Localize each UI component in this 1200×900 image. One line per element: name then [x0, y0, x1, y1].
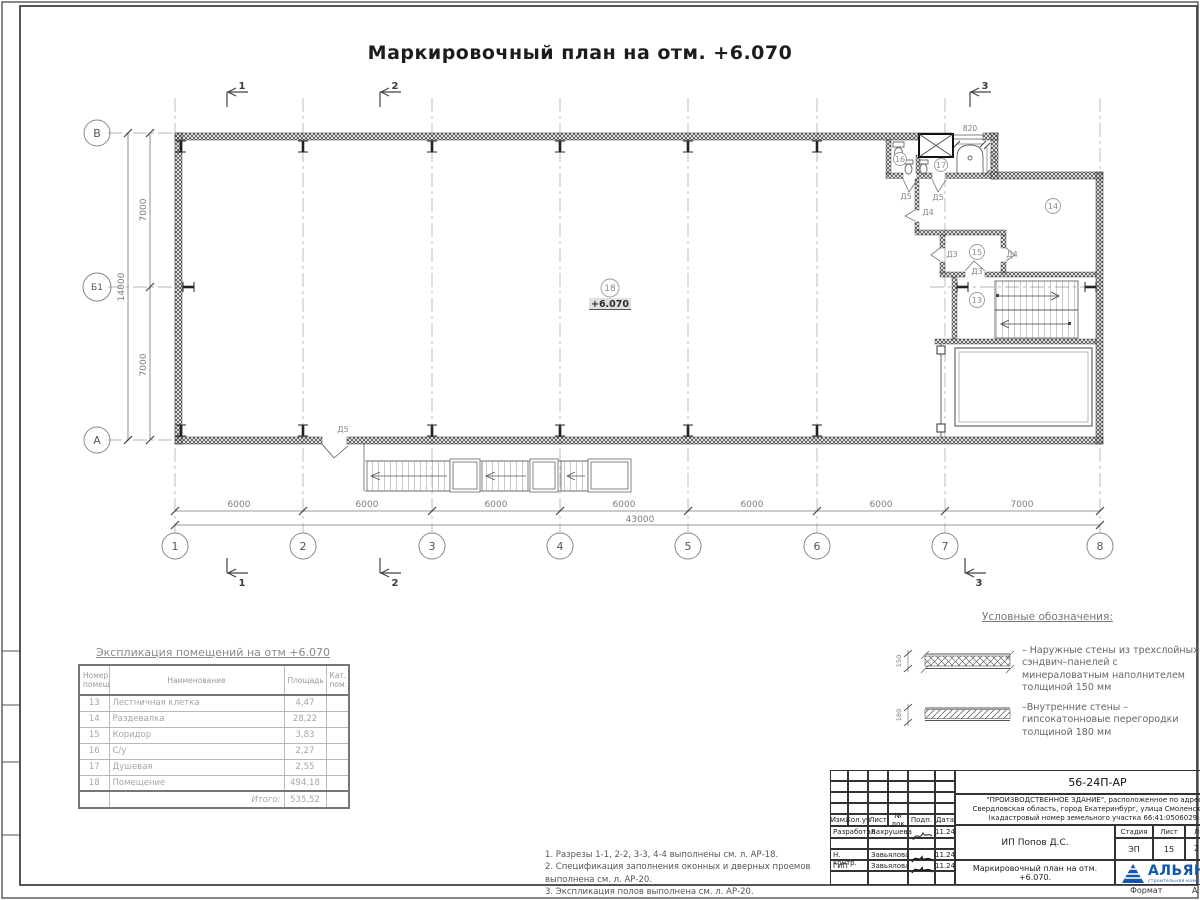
tb-cell: [908, 803, 935, 814]
dimensions-left: 7000 7000 14000: [117, 129, 154, 444]
tb-date-ncontrol: 11.24: [935, 849, 955, 860]
tb-cell: [935, 803, 955, 814]
tb-client: ИП Попов Д.С.: [955, 825, 1115, 860]
cell-area: 494,18: [284, 775, 326, 791]
table-row: 18 Помещение 494,18: [79, 775, 349, 791]
tb-cell: [935, 770, 955, 781]
note-line: 3. Экспликация полов выполнена см. л. АР…: [545, 886, 855, 898]
col-header-name: Наименование: [109, 665, 284, 695]
tb-name-ncontrol: Завьялова: [868, 849, 908, 860]
tb-signature-gip: [908, 860, 935, 871]
svg-text:6000: 6000: [870, 500, 893, 510]
tb-cell: [888, 770, 908, 781]
svg-text:2: 2: [300, 540, 307, 553]
cell-number: 16: [79, 743, 109, 759]
room-schedule: Экспликация помещений на отм +6.070 Номе…: [78, 646, 350, 809]
cell-name: Коридор: [109, 727, 284, 743]
tb-stage-label: Стадия: [1115, 825, 1153, 838]
cell-cat: [326, 759, 349, 775]
svg-text:8: 8: [1097, 540, 1104, 553]
svg-text:6000: 6000: [228, 500, 251, 510]
svg-text:В: В: [93, 127, 101, 140]
logo-name: АЛЬЯНС: [1148, 863, 1200, 879]
svg-text:150: 150: [895, 655, 903, 667]
cell-cat: [326, 711, 349, 727]
tb-col-data: Дата: [935, 814, 955, 826]
cell-cat: [326, 743, 349, 759]
tb-signature-developer: [908, 826, 935, 838]
svg-text:7000: 7000: [139, 198, 149, 221]
exterior-stair: [322, 444, 631, 492]
svg-text:+6.070: +6.070: [591, 299, 629, 310]
svg-text:Д4: Д4: [922, 208, 933, 217]
tb-logo-cell: АЛЬЯНС строительная компания: [1115, 860, 1200, 885]
svg-text:7: 7: [942, 540, 949, 553]
svg-text:1: 1: [172, 540, 179, 553]
cell-area: 2,27: [284, 743, 326, 759]
tb-cell: [888, 781, 908, 792]
total-label: Итого:: [109, 791, 284, 808]
svg-text:1100: 1100: [989, 150, 998, 169]
tb-project-description: "ПРОИЗВОДСТВЕННОЕ ЗДАНИЕ", расположенное…: [955, 794, 1200, 825]
tb-cell: [830, 803, 848, 814]
tb-cell: [935, 781, 955, 792]
cell-area: 4,47: [284, 695, 326, 711]
table-row: 15 Коридор 3,83: [79, 727, 349, 743]
notes-block: 1. Разрезы 1-1, 2-2, 3-3, 4-4 выполнены …: [545, 849, 855, 898]
cell-name: Раздевалка: [109, 711, 284, 727]
table-row: 16 С/у 2,27: [79, 743, 349, 759]
floor-opening: [937, 346, 1092, 432]
page-title: Маркировочный план на отм. +6.070: [300, 42, 860, 64]
tb-cell: [868, 792, 888, 803]
tb-sheet-title: Маркировочный план на отм. +6.070.: [955, 860, 1115, 885]
tb-cell: [935, 792, 955, 803]
svg-text:15: 15: [972, 248, 982, 257]
svg-text:6000: 6000: [613, 500, 636, 510]
table-header-row: Номер помещ. Наименование Площадь Кат. п…: [79, 665, 349, 695]
svg-text:3: 3: [976, 578, 983, 589]
svg-text:Д5: Д5: [932, 193, 943, 202]
cell-name: Душевая: [109, 759, 284, 775]
col-header-area: Площадь: [284, 665, 326, 695]
cell-number: 18: [79, 775, 109, 791]
svg-text:13: 13: [972, 296, 982, 305]
cell-cat: [326, 727, 349, 743]
table-row: 14 Раздевалка 28,22: [79, 711, 349, 727]
elevation-mark: +6.070: [589, 298, 631, 310]
elevator-shaft: [919, 134, 953, 157]
svg-text:6: 6: [814, 540, 821, 553]
format-label: Формат: [1130, 886, 1162, 895]
format-value: А: [1192, 886, 1197, 895]
cell-area: 28,22: [284, 711, 326, 727]
tb-cell: [868, 803, 888, 814]
tb-cell: [830, 871, 868, 885]
tb-sheets-label: Листов: [1185, 825, 1200, 838]
tb-cell: [868, 871, 908, 885]
tb-name-gip: Завьялова: [868, 860, 908, 871]
svg-text:Д4: Д4: [1006, 250, 1017, 259]
table-total-row: Итого: 535,52: [79, 791, 349, 808]
exterior-walls: [175, 133, 1103, 444]
alliance-logo-icon: [1122, 864, 1144, 883]
tb-cell: [848, 781, 868, 792]
drawing-sheet: 1 2 3 4 5 6 7 8 В Б1 А 6000 6000 6000 60…: [0, 0, 1200, 900]
axis-labels-bottom: 1 2 3 4 5 6 7 8: [172, 540, 1104, 553]
svg-text:18: 18: [604, 284, 616, 294]
cell-number: 14: [79, 711, 109, 727]
tb-col-ndok: № док: [888, 814, 908, 826]
svg-text:1: 1: [239, 578, 246, 589]
cell-cat: [326, 695, 349, 711]
cell-number: 13: [79, 695, 109, 711]
table-row: 13 Лестничная клетка 4,47: [79, 695, 349, 711]
tb-col-list: Лист: [868, 814, 888, 826]
cell-name: Лестничная клетка: [109, 695, 284, 711]
svg-text:4: 4: [557, 540, 564, 553]
col-header-number: Номер помещ.: [79, 665, 109, 695]
svg-text:Б1: Б1: [91, 283, 103, 293]
dimensions-bottom: 6000 6000 6000 6000 6000 6000 7000 43000: [171, 500, 1104, 529]
svg-text:А: А: [93, 434, 101, 447]
svg-text:14: 14: [1048, 202, 1058, 211]
tb-cell: [868, 838, 908, 849]
total-value: 535,52: [284, 791, 326, 808]
svg-text:7000: 7000: [1011, 500, 1034, 510]
tb-document-code: 56-24П-АР: [955, 770, 1200, 794]
svg-text:Д5: Д5: [337, 425, 348, 434]
tb-cell: [908, 792, 935, 803]
svg-text:5: 5: [685, 540, 692, 553]
tb-cell: [830, 781, 848, 792]
svg-text:2: 2: [392, 81, 399, 92]
tb-sheets-value: 2: [1185, 838, 1200, 860]
svg-text:180: 180: [895, 709, 903, 721]
room-schedule-table: Номер помещ. Наименование Площадь Кат. п…: [78, 664, 350, 809]
tb-name-developer: Вахрушева: [868, 826, 908, 838]
tb-cell: [868, 770, 888, 781]
tb-cell: [908, 770, 935, 781]
cell-cat: [326, 775, 349, 791]
tb-role-gip: ГИП: [830, 860, 868, 871]
tb-cell: [908, 781, 935, 792]
svg-text:Д3: Д3: [946, 250, 957, 259]
legend-title: Условные обозначения:: [982, 611, 1113, 623]
tb-cell: [908, 871, 935, 885]
svg-text:Д3: Д3: [971, 267, 982, 276]
logo-tagline: строительная компания: [1148, 879, 1200, 884]
svg-text:2: 2: [392, 578, 399, 589]
tb-signature-ncontrol: [908, 849, 935, 860]
svg-text:43000: 43000: [626, 515, 655, 525]
section-mark-labels: 1 2 3 1 2 3: [239, 81, 989, 589]
tb-col-koluch: Кол.уч: [848, 814, 868, 826]
tb-cell: [830, 770, 848, 781]
tb-role-ncontrol: Н. контр.: [830, 849, 868, 860]
tb-cell: [935, 838, 955, 849]
cell-area: 3,83: [284, 727, 326, 743]
axis-labels-left: В Б1 А: [91, 127, 103, 447]
door-swings: [903, 179, 1015, 271]
svg-text:6000: 6000: [485, 500, 508, 510]
cell-number: 15: [79, 727, 109, 743]
room-schedule-title: Экспликация помещений на отм +6.070: [78, 646, 348, 659]
svg-text:6000: 6000: [356, 500, 379, 510]
cell-name: С/у: [109, 743, 284, 759]
svg-text:6000: 6000: [741, 500, 764, 510]
title-block: Изм. Кол.уч Лист № док Подп. Дата Разраб…: [830, 770, 1200, 885]
table-row: 17 Душевая 2,55: [79, 759, 349, 775]
tb-cell: [935, 871, 955, 885]
tb-cell: [848, 770, 868, 781]
cell-number: 17: [79, 759, 109, 775]
col-header-cat: Кат. пом.: [326, 665, 349, 695]
svg-text:7000: 7000: [139, 353, 149, 376]
note-line: 2. Спецификация заполнения оконных и две…: [545, 861, 855, 886]
cell-name: Помещение: [109, 775, 284, 791]
note-line: 1. Разрезы 1-1, 2-2, 3-3, 4-4 выполнены …: [545, 849, 855, 861]
cell-empty: [79, 791, 109, 808]
tb-cell: [830, 838, 868, 849]
tb-col-podp: Подп.: [908, 814, 935, 826]
tb-cell: [908, 838, 935, 849]
svg-text:Д5: Д5: [900, 192, 911, 201]
legend-item-interior-walls: –Внутренние стены – гипсокатонновые пере…: [1022, 702, 1200, 739]
cell-empty: [326, 791, 349, 808]
tb-date-developer: 11.24: [935, 826, 955, 838]
tb-cell: [848, 803, 868, 814]
cell-area: 2,55: [284, 759, 326, 775]
svg-text:16: 16: [895, 155, 905, 164]
legend-symbols: 150 180: [895, 650, 1014, 726]
tb-cell: [830, 792, 848, 803]
column-symbols: [176, 141, 1096, 436]
tb-cell: [848, 792, 868, 803]
svg-text:3: 3: [982, 81, 989, 92]
svg-text:17: 17: [936, 161, 946, 170]
tb-cell: [868, 781, 888, 792]
tb-date-gip: 11.24: [935, 860, 955, 871]
tb-sheet-value: 15: [1153, 838, 1185, 860]
tb-stage-value: ЭП: [1115, 838, 1153, 860]
svg-text:3: 3: [429, 540, 436, 553]
legend-item-exterior-walls: – Наружные стены из трехслойных сэндвич–…: [1022, 645, 1200, 694]
svg-text:1: 1: [239, 81, 246, 92]
svg-text:820: 820: [963, 124, 978, 133]
tb-sheet-label: Лист: [1153, 825, 1185, 838]
stairwell-stairs: [995, 281, 1078, 338]
tb-role-developer: Разработал: [830, 826, 868, 838]
tb-cell: [888, 792, 908, 803]
svg-text:14000: 14000: [117, 272, 127, 301]
